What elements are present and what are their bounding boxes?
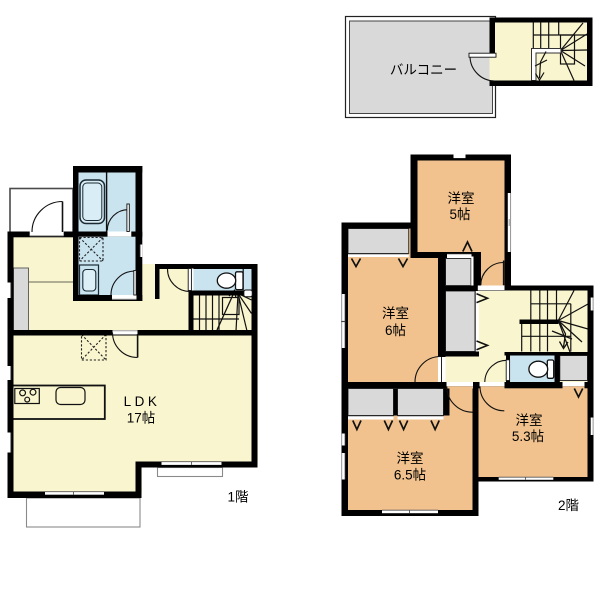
svg-text:洋室: 洋室 <box>516 412 543 428</box>
svg-text:洋室: 洋室 <box>382 305 409 321</box>
svg-text:5帖: 5帖 <box>449 207 470 222</box>
svg-text:洋室: 洋室 <box>397 450 424 466</box>
svg-text:1階: 1階 <box>227 490 248 505</box>
svg-text:17帖: 17帖 <box>127 411 156 426</box>
svg-text:5.3帖: 5.3帖 <box>512 429 544 444</box>
svg-text:LDK: LDK <box>124 394 161 409</box>
svg-text:6帖: 6帖 <box>385 323 406 338</box>
svg-text:バルコニー: バルコニー <box>390 63 457 78</box>
svg-text:6.5帖: 6.5帖 <box>394 468 426 483</box>
svg-text:2階: 2階 <box>558 498 579 513</box>
svg-text:洋室: 洋室 <box>448 190 475 206</box>
